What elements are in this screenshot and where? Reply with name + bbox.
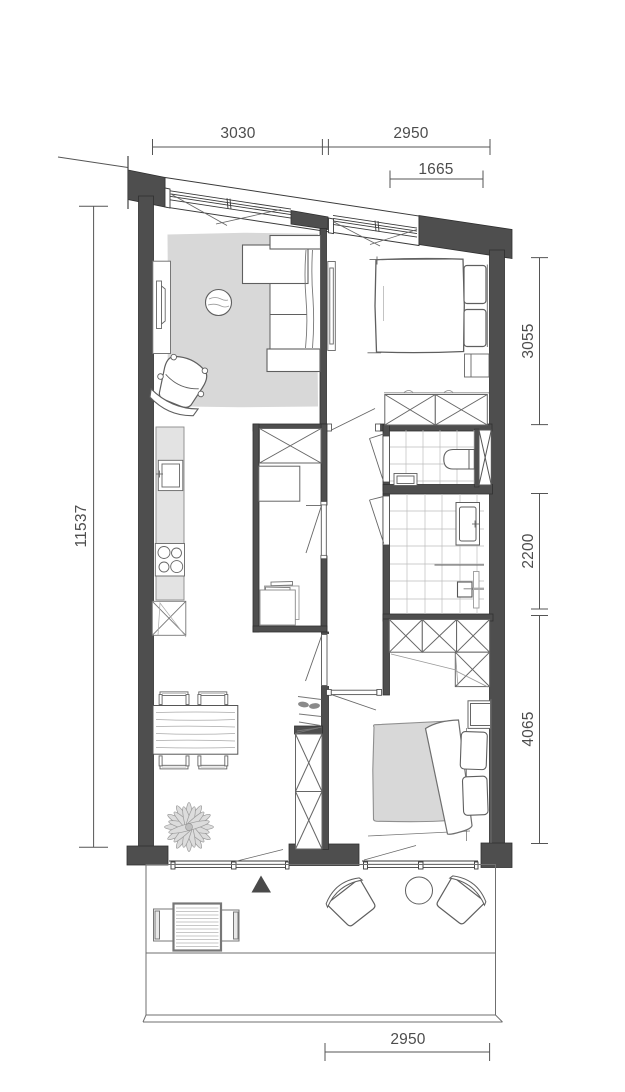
svg-text:3055: 3055 xyxy=(520,323,537,358)
svg-text:2200: 2200 xyxy=(520,533,537,568)
svg-text:1665: 1665 xyxy=(418,161,453,178)
svg-text:4065: 4065 xyxy=(520,711,537,746)
svg-text:3030: 3030 xyxy=(220,125,255,142)
svg-text:2950: 2950 xyxy=(390,1031,425,1048)
svg-text:2950: 2950 xyxy=(393,125,428,142)
svg-text:11537: 11537 xyxy=(73,505,90,548)
